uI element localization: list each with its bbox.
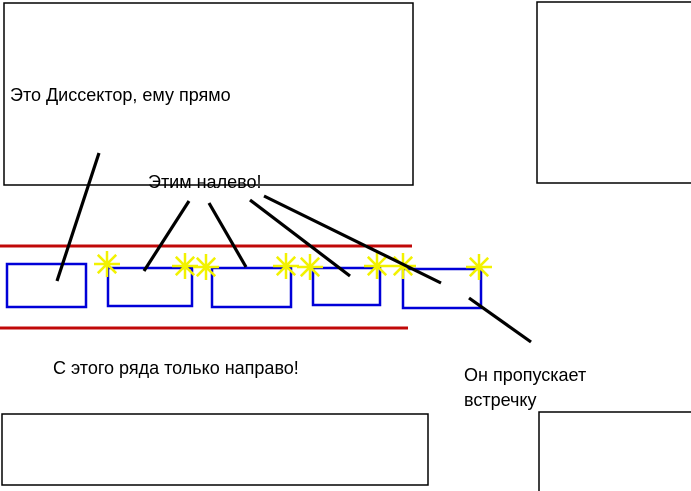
turn-signal-icon (364, 253, 390, 279)
pointer-to-yield-note (469, 298, 531, 342)
turn-signal-icon (273, 253, 299, 279)
signal-ray (301, 258, 319, 276)
signal-ray (176, 257, 194, 275)
pointer-to-car-1 (57, 153, 99, 281)
building-bottom-left (2, 414, 428, 485)
annotation-left-turn-cars: Этим налево! (148, 170, 261, 195)
turn-signal-icon (172, 253, 198, 279)
signal-ray (197, 258, 215, 276)
car-4 (313, 268, 380, 305)
annotation-right-only-lane: С этого ряда только направо! (53, 356, 299, 381)
pointer-to-car-5 (264, 196, 441, 283)
annotation-yielding-car: Он пропускает встречку (464, 363, 586, 413)
signal-ray (176, 257, 194, 275)
car-3 (212, 268, 291, 307)
signal-ray (394, 257, 412, 275)
signal-ray (368, 257, 386, 275)
turn-signal-icon (466, 254, 492, 280)
paint-drawing: Это Диссектор, ему прямо Этим налево! С … (0, 0, 691, 491)
annotation-straight-car: Это Диссектор, ему прямо (10, 83, 231, 108)
pointer-to-car-3 (209, 203, 246, 267)
car-1 (7, 264, 86, 307)
signal-ray (277, 257, 295, 275)
signal-ray (470, 258, 488, 276)
turn-signal-icon (193, 254, 219, 280)
turn-signal-icon (94, 251, 120, 277)
signal-ray (470, 258, 488, 276)
turn-signal-icon (297, 254, 323, 280)
signal-ray (368, 257, 386, 275)
diagram-canvas (0, 0, 691, 491)
signal-ray (277, 257, 295, 275)
signal-ray (394, 257, 412, 275)
signal-ray (197, 258, 215, 276)
pointer-to-car-2 (144, 201, 189, 271)
car-2 (108, 268, 192, 306)
signal-ray (98, 255, 116, 273)
signal-ray (301, 258, 319, 276)
building-bottom-right (539, 412, 691, 491)
pointer-to-car-4 (250, 200, 350, 276)
building-top-right (537, 2, 691, 183)
turn-signal-icon (390, 253, 416, 279)
signal-ray (98, 255, 116, 273)
car-5 (403, 269, 481, 308)
